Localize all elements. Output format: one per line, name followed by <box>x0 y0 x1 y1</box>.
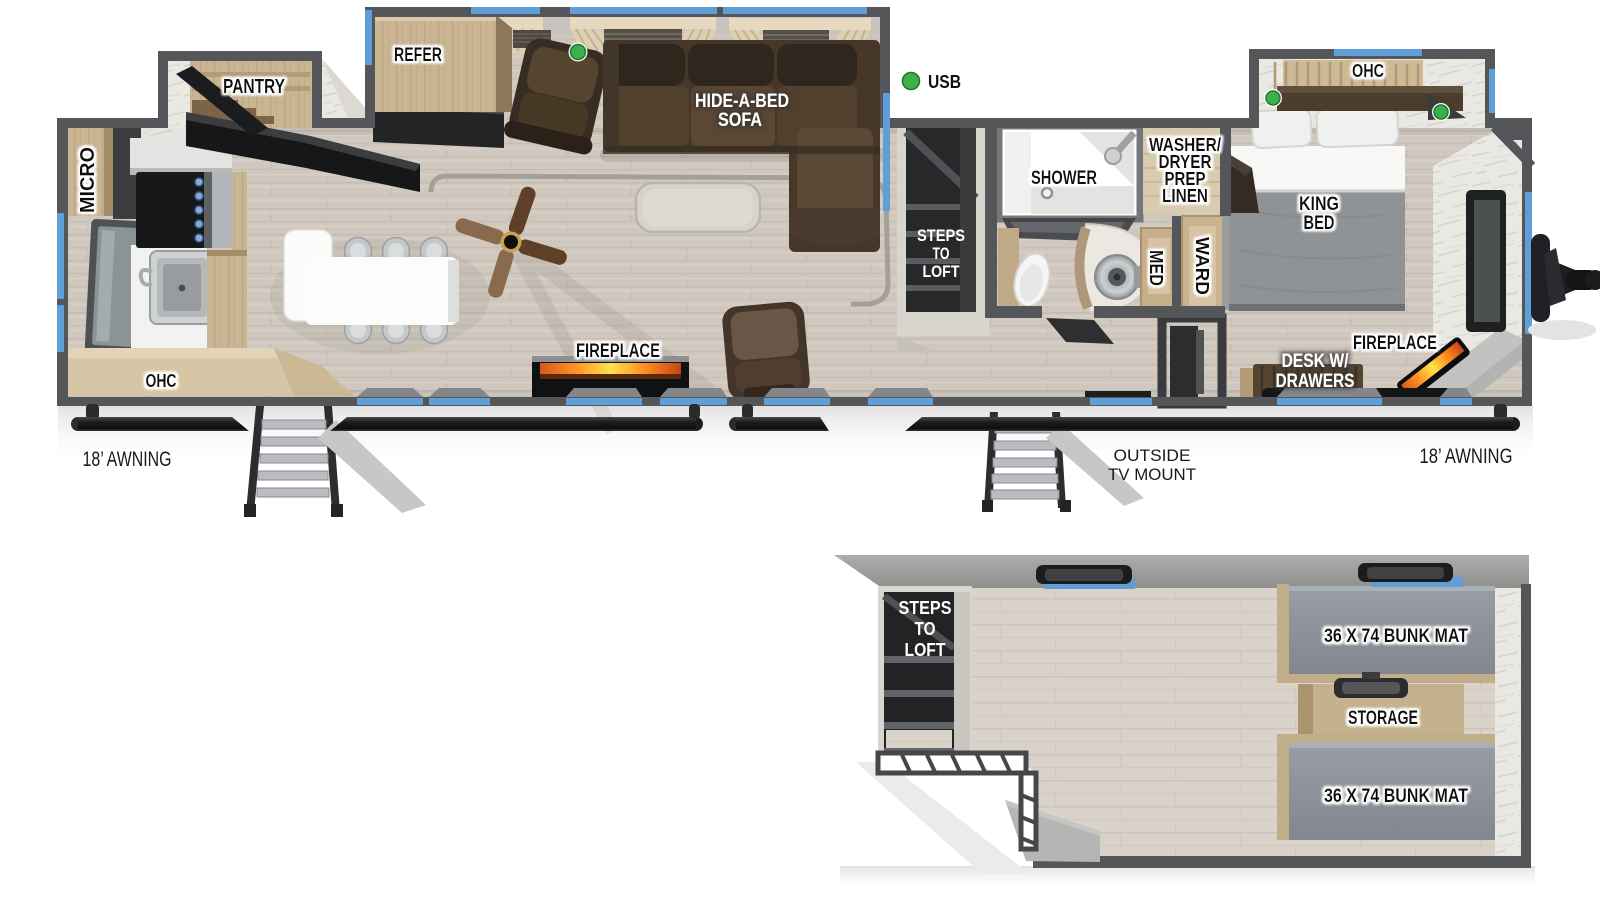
svg-text:MED: MED <box>1146 250 1166 286</box>
svg-text:STORAGE: STORAGE <box>1348 708 1418 729</box>
svg-text:OHC: OHC <box>1352 61 1384 81</box>
svg-text:REFER: REFER <box>394 45 442 66</box>
svg-text:MICRO: MICRO <box>77 147 99 213</box>
svg-text:LINEN: LINEN <box>1162 186 1208 206</box>
svg-text:18’ AWNING: 18’ AWNING <box>1420 445 1513 468</box>
svg-text:PANTRY: PANTRY <box>223 76 286 98</box>
svg-text:TV MOUNT: TV MOUNT <box>1108 466 1196 484</box>
svg-text:18’ AWNING: 18’ AWNING <box>83 448 172 471</box>
svg-text:WARD: WARD <box>1192 237 1212 295</box>
svg-text:OUTSIDE: OUTSIDE <box>1114 447 1191 465</box>
svg-text:STEPS: STEPS <box>899 598 952 618</box>
svg-text:36 X 74 BUNK MAT: 36 X 74 BUNK MAT <box>1324 786 1468 807</box>
svg-text:DRAWERS: DRAWERS <box>1276 371 1355 392</box>
svg-text:TO: TO <box>933 244 950 263</box>
svg-text:TO: TO <box>915 619 936 639</box>
svg-text:36 X 74 BUNK MAT: 36 X 74 BUNK MAT <box>1324 626 1468 647</box>
svg-text:SHOWER: SHOWER <box>1031 168 1097 189</box>
svg-text:FIREPLACE: FIREPLACE <box>1353 333 1437 354</box>
svg-text:HIDE-A-BED: HIDE-A-BED <box>695 91 789 112</box>
svg-text:DESK W/: DESK W/ <box>1282 351 1350 372</box>
svg-text:LOFT: LOFT <box>923 262 961 281</box>
svg-text:FIREPLACE: FIREPLACE <box>576 341 660 362</box>
svg-text:KING: KING <box>1299 194 1339 215</box>
svg-text:OHC: OHC <box>146 371 177 391</box>
svg-text:USB: USB <box>928 72 961 92</box>
svg-text:LOFT: LOFT <box>905 640 946 660</box>
svg-text:SOFA: SOFA <box>718 110 762 131</box>
svg-text:BED: BED <box>1304 213 1335 234</box>
svg-text:STEPS: STEPS <box>917 226 965 245</box>
